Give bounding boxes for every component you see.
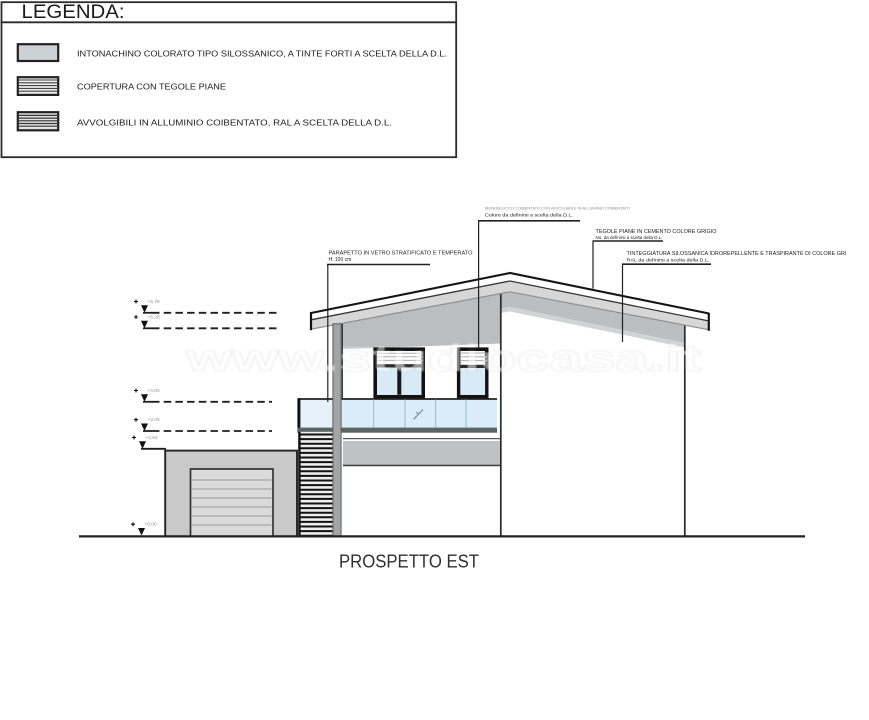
svg-text:TEGOLE PIANE IN CEMENTO COLORE: TEGOLE PIANE IN CEMENTO COLORE GRIGIO xyxy=(596,229,717,235)
svg-text:www.studiocasa.it: www.studiocasa.it xyxy=(184,338,701,380)
svg-text:PARAPETTO IN VETRO STRATIFICAT: PARAPETTO IN VETRO STRATIFICATO E TEMPER… xyxy=(329,251,473,257)
svg-text:No. da definirsi a scelta dell: No. da definirsi a scelta della D.L. xyxy=(596,235,663,240)
svg-text:+3,05: +3,05 xyxy=(148,417,160,423)
svg-text:+4,05: +4,05 xyxy=(148,388,160,394)
svg-text:LEGENDA:: LEGENDA: xyxy=(22,2,125,23)
svg-text:INTONACHINO COLORATO TIPO SILO: INTONACHINO COLORATO TIPO SILOSSANICO, A… xyxy=(77,50,447,59)
svg-text:Colore da definirsi a scelta d: Colore da definirsi a scelta della D.L. xyxy=(485,212,573,217)
svg-text:+2,64: +2,64 xyxy=(146,435,158,441)
svg-text:MONOBLOCCO COIBENTATO CON AVVO: MONOBLOCCO COIBENTATO CON AVVOLGIBILE IN… xyxy=(485,206,630,211)
svg-text:+5,78: +5,78 xyxy=(148,299,160,305)
svg-text:PROSPETTO EST: PROSPETTO EST xyxy=(339,552,479,572)
svg-text:+5,28: +5,28 xyxy=(148,315,160,321)
svg-text:+0,00: +0,00 xyxy=(145,522,157,528)
svg-text:COPERTURA CON TEGOLE PIANE: COPERTURA CON TEGOLE PIANE xyxy=(77,83,226,92)
svg-text:TINTEGGIATURA SILOSSANICA IDRO: TINTEGGIATURA SILOSSANICA IDROREPELLENTE… xyxy=(627,251,847,257)
svg-text:AVVOLGIBILI IN ALLUMINIO COIBE: AVVOLGIBILI IN ALLUMINIO COIBENTATO, RAL… xyxy=(77,119,392,128)
svg-text:H: 100 cm: H: 100 cm xyxy=(329,257,352,263)
svg-text:RAL da definirsi a scelta dell: RAL da definirsi a scelta della D.L. xyxy=(627,257,710,262)
